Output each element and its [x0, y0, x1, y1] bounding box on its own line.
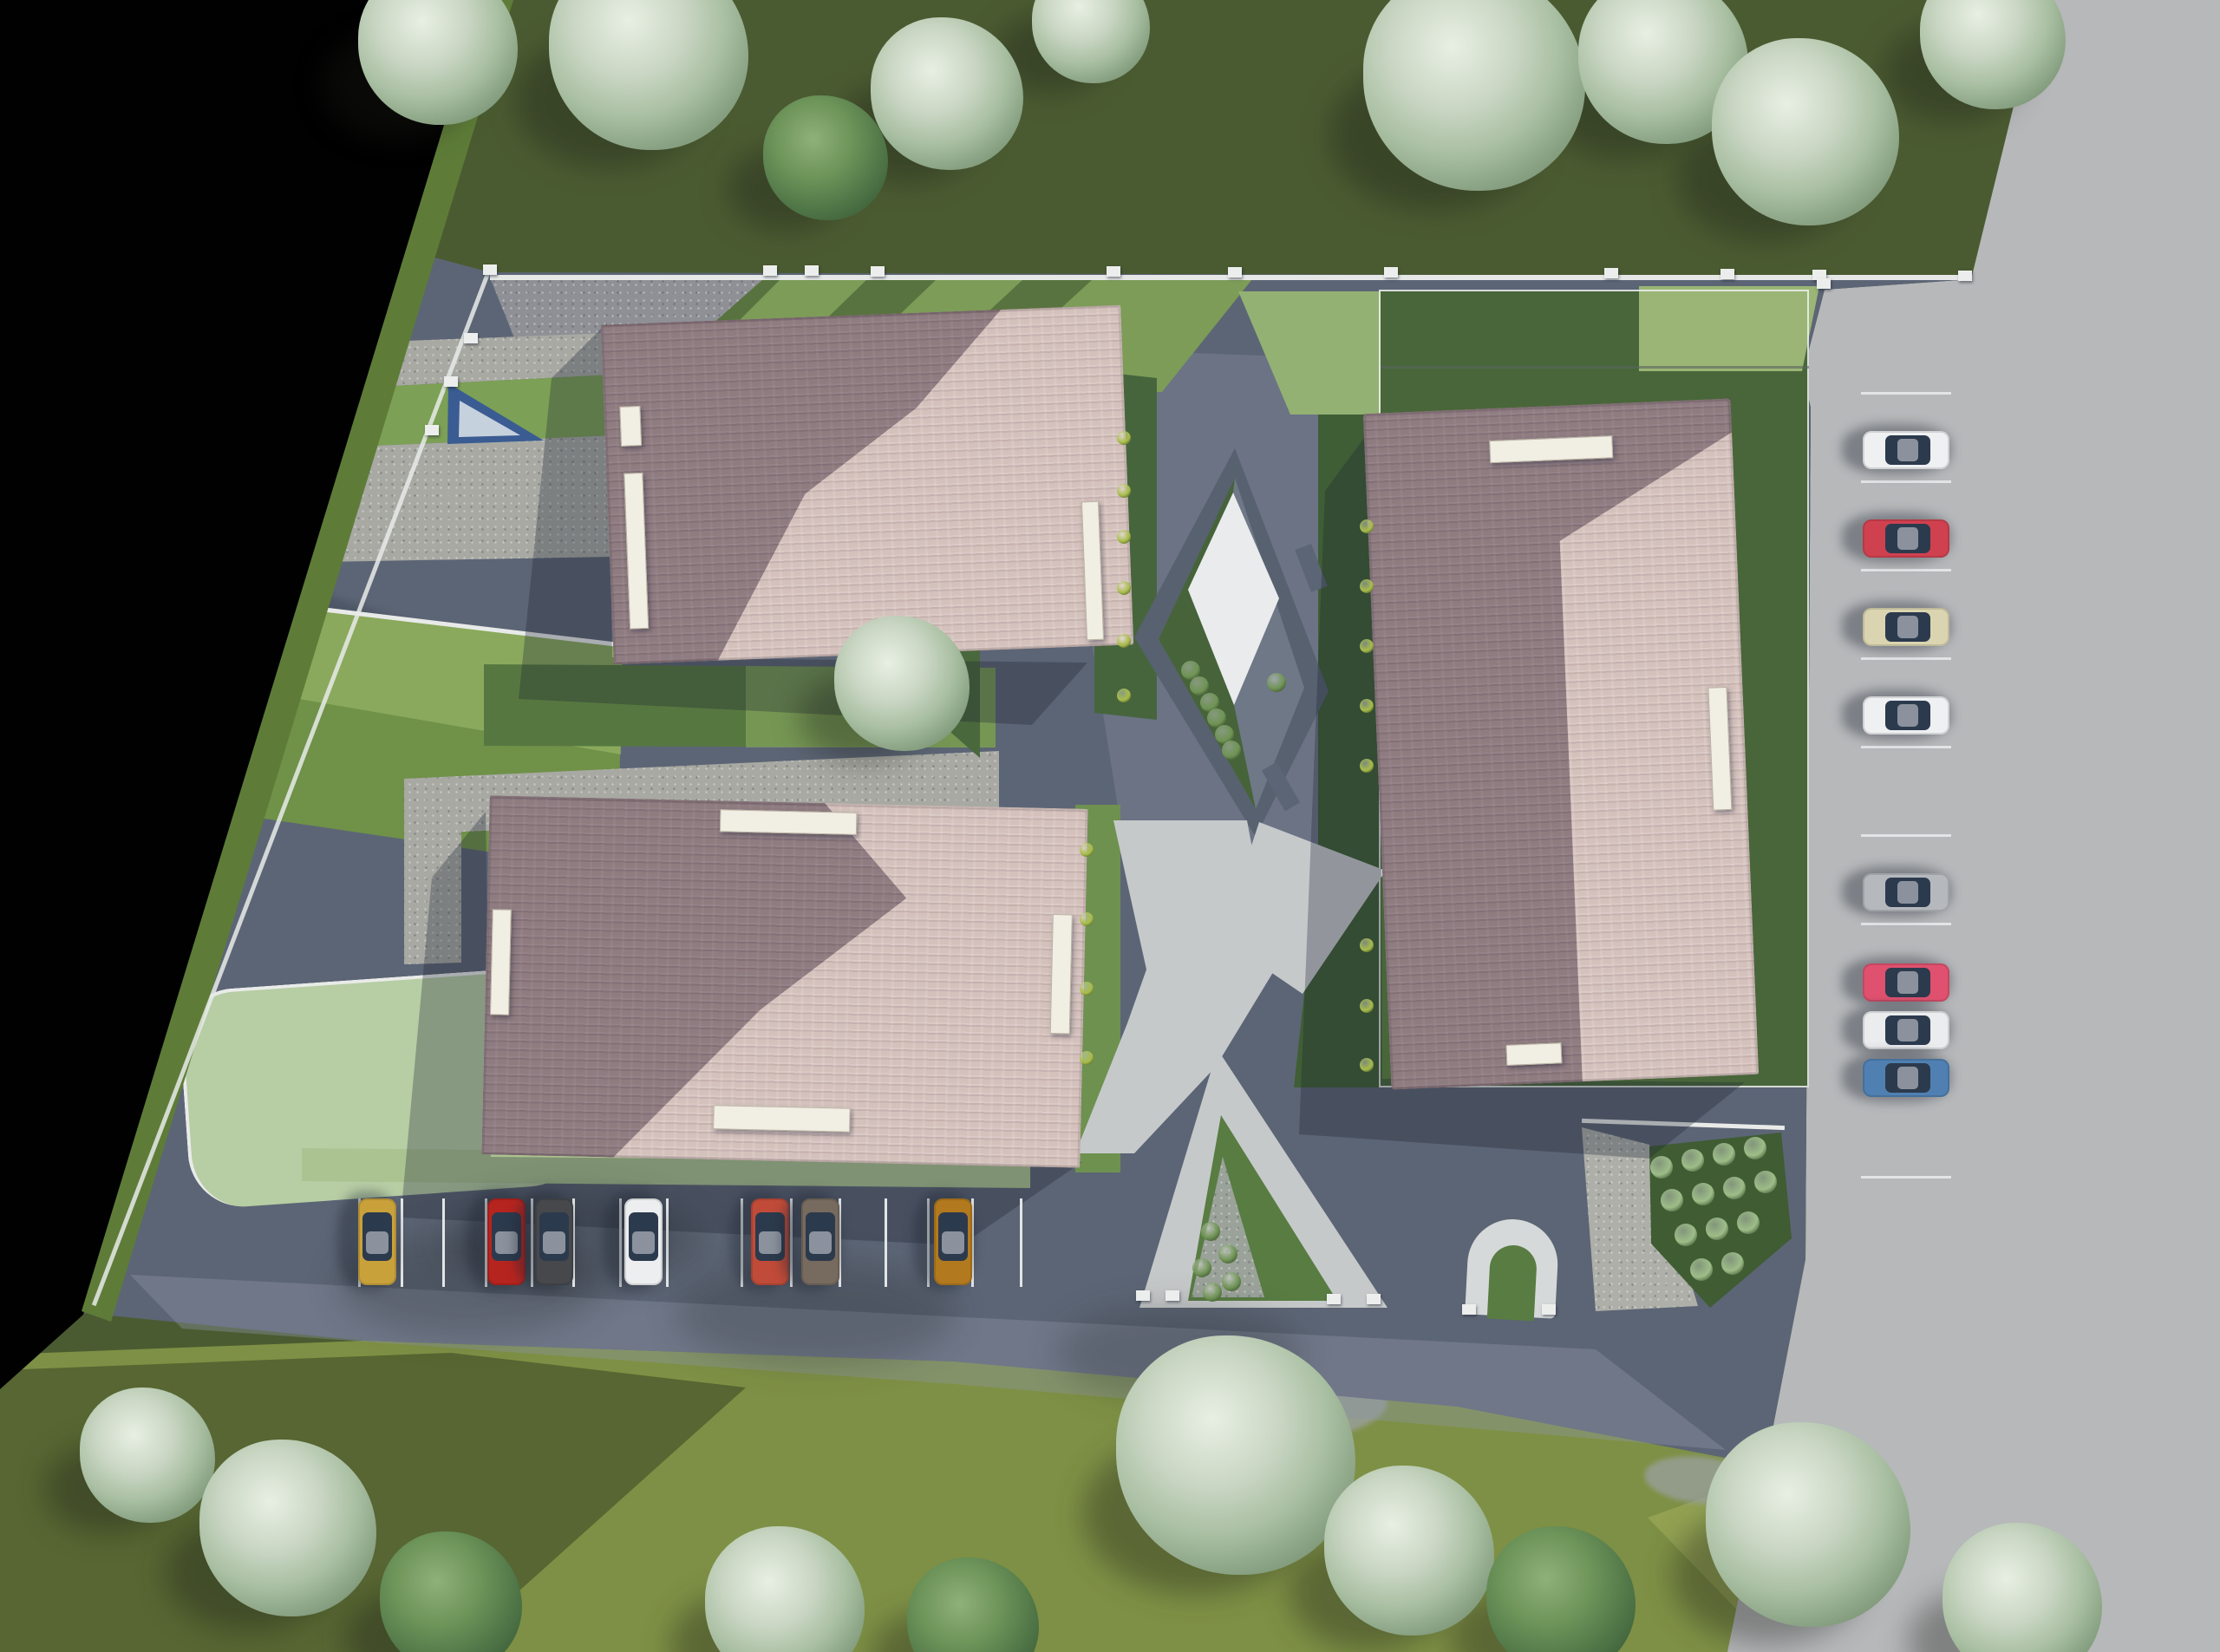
pale-tree — [358, 0, 518, 125]
pale-tree — [871, 17, 1023, 170]
pale-tree — [1920, 0, 2066, 109]
pale-tree — [834, 616, 970, 751]
pale-tree — [1116, 1335, 1355, 1575]
pale-tree — [549, 0, 748, 150]
pale-tree — [1363, 0, 1585, 191]
pale-tree — [1032, 0, 1150, 83]
dark-tree — [380, 1531, 522, 1652]
aerial-site-plan-render — [0, 0, 2220, 1652]
pale-tree — [1712, 38, 1899, 225]
pale-tree — [80, 1388, 215, 1523]
dark-tree — [763, 95, 888, 220]
pale-tree — [1324, 1466, 1494, 1636]
dark-tree — [907, 1557, 1039, 1652]
pale-tree — [1706, 1422, 1910, 1627]
trees-layer — [0, 0, 2220, 1652]
pale-tree — [705, 1526, 865, 1652]
pale-tree — [199, 1440, 376, 1616]
pale-tree — [1942, 1523, 2102, 1652]
dark-tree — [1486, 1526, 1636, 1652]
